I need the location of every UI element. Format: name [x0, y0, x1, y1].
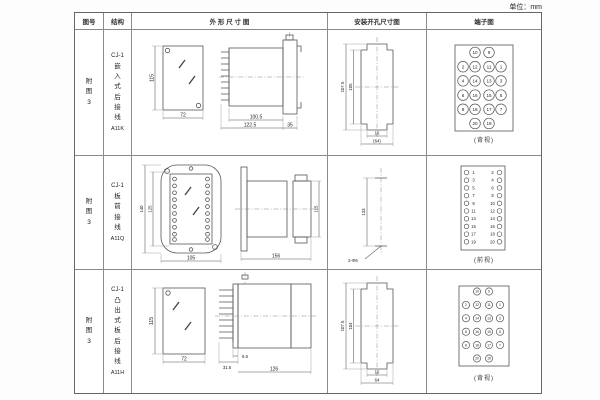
cell-outline-row1: 115 72 100.5 122.5 35 — [132, 30, 328, 156]
dim-label: 16 — [375, 369, 380, 374]
svg-text:10: 10 — [472, 50, 478, 55]
svg-text:18: 18 — [475, 343, 479, 347]
svg-text:4: 4 — [491, 177, 494, 182]
svg-text:12: 12 — [475, 303, 479, 307]
svg-text:10: 10 — [475, 289, 479, 293]
dim-label: 140 — [139, 204, 144, 212]
svg-text:7: 7 — [499, 343, 501, 347]
svg-text:9: 9 — [472, 200, 475, 205]
cell-terminal-row1: 1012141618209111315171924681357 (背视) — [427, 30, 541, 156]
svg-text:6: 6 — [465, 329, 467, 333]
cell-install-row1: 107.5 105 16 (64) — [328, 30, 427, 156]
dim-label: 115 — [149, 316, 155, 324]
svg-text:8: 8 — [462, 106, 465, 111]
terminal-diagram-a11k: 1012141618209111315171924681357 — [450, 42, 518, 134]
svg-text:12: 12 — [472, 64, 478, 69]
dim-label: 115 — [149, 73, 155, 81]
svg-text:5: 5 — [472, 185, 475, 190]
dim-label: 72 — [180, 112, 186, 118]
header-outline: 外 形 尺 寸 图 — [132, 13, 328, 30]
svg-text:17: 17 — [487, 343, 491, 347]
model-text: CJ-1 — [111, 183, 124, 189]
cell-structure-row2: CJ-1 板前接线 A11Q — [104, 156, 132, 270]
svg-text:13: 13 — [471, 216, 476, 221]
code-text: A11H — [111, 370, 124, 376]
svg-text:19: 19 — [487, 356, 491, 360]
dim-label: 115 — [313, 204, 318, 211]
cell-install-row2: 133 2-Φ6 — [328, 156, 427, 270]
dim-label: 100.5 — [249, 114, 262, 120]
cell-outline-row2: 140 125 105 156 115 — [132, 156, 328, 270]
mount-text: 嵌入式后接线 — [114, 62, 121, 122]
outline-drawing-a11q: 140 125 105 156 115 — [133, 157, 327, 269]
svg-text:9: 9 — [488, 50, 491, 55]
dim-label: 9.5 — [242, 354, 249, 359]
svg-text:19: 19 — [486, 121, 492, 126]
svg-text:3: 3 — [499, 316, 501, 320]
svg-text:5: 5 — [500, 92, 503, 97]
code-text: A11Q — [111, 236, 125, 242]
svg-text:8: 8 — [491, 193, 494, 198]
svg-text:6: 6 — [462, 92, 465, 97]
header-install: 安装开孔尺寸图 — [328, 13, 427, 30]
header-structure: 结构 — [104, 13, 132, 30]
code-text: A11K — [111, 126, 124, 132]
svg-text:8: 8 — [465, 343, 467, 347]
dim-label: 107.5 — [340, 320, 345, 331]
drawing-table: 图号 结构 外 形 尺 寸 图 安装开孔尺寸图 端子图 附图3 CJ-1 嵌入式… — [74, 12, 542, 394]
terminal-caption: (背视) — [474, 373, 494, 382]
dim-label: 107.5 — [340, 81, 345, 92]
svg-text:18: 18 — [472, 106, 478, 111]
model-text: CJ-1 — [111, 287, 124, 293]
dim-label: 156 — [271, 253, 280, 259]
svg-text:11: 11 — [487, 303, 491, 307]
dim-label: 133 — [361, 207, 366, 215]
dim-label: 16 — [375, 130, 380, 135]
svg-text:1: 1 — [499, 303, 501, 307]
mount-text: 板前接线 — [114, 192, 121, 232]
svg-text:13: 13 — [486, 78, 492, 83]
svg-text:19: 19 — [471, 239, 476, 244]
dim-label: 126 — [269, 366, 278, 372]
cell-fig-no-row1: 附图3 — [75, 30, 104, 156]
install-drawing-a11h: 107.5 104 16 64 — [331, 273, 423, 391]
svg-text:20: 20 — [490, 239, 495, 244]
fig-no-text: 附图3 — [85, 77, 92, 107]
dim-label: 2-Φ6 — [348, 258, 358, 263]
svg-text:16: 16 — [475, 329, 479, 333]
dim-label: (64) — [373, 138, 381, 143]
svg-text:17: 17 — [471, 231, 476, 236]
dim-label: 31.5 — [222, 365, 231, 370]
cell-install-row3: 107.5 104 16 64 — [328, 270, 427, 393]
cell-fig-no-row3: 附图3 — [75, 270, 104, 393]
dim-label: 72 — [181, 356, 187, 362]
terminal-diagram-a11h: 1012141618209111315171924681357 — [452, 282, 516, 372]
svg-text:16: 16 — [472, 92, 478, 97]
dim-label: 64 — [375, 377, 380, 382]
terminal-diagram-a11q: 1234567891011121314151617181920 — [450, 162, 518, 254]
svg-text:11: 11 — [471, 208, 476, 213]
unit-label: 单位：mm — [509, 2, 542, 12]
svg-text:1: 1 — [472, 170, 475, 175]
header-terminal: 端子图 — [427, 13, 541, 30]
svg-text:20: 20 — [472, 121, 478, 126]
outline-drawing-a11k: 115 72 100.5 122.5 35 — [133, 32, 327, 154]
svg-text:15: 15 — [471, 223, 476, 228]
svg-text:2: 2 — [465, 303, 467, 307]
install-drawing-a11q: 133 2-Φ6 — [331, 158, 423, 268]
cell-terminal-row2: 1234567891011121314151617181920 (前视) — [427, 156, 541, 270]
svg-text:6: 6 — [491, 185, 494, 190]
svg-text:4: 4 — [465, 316, 467, 320]
terminal-caption: (前视) — [474, 255, 494, 264]
cell-fig-no-row2: 附图3 — [75, 156, 104, 270]
svg-text:11: 11 — [487, 64, 492, 69]
svg-text:15: 15 — [487, 329, 491, 333]
svg-text:1: 1 — [500, 64, 503, 69]
svg-text:12: 12 — [490, 208, 495, 213]
cell-structure-row1: CJ-1 嵌入式后接线 A11K — [104, 30, 132, 156]
svg-text:10: 10 — [490, 200, 495, 205]
svg-text:2: 2 — [462, 64, 465, 69]
svg-text:17: 17 — [486, 106, 492, 111]
model-text: CJ-1 — [111, 53, 124, 59]
svg-text:2: 2 — [491, 170, 494, 175]
svg-text:5: 5 — [499, 329, 501, 333]
svg-text:4: 4 — [462, 78, 465, 83]
svg-text:14: 14 — [475, 316, 479, 320]
svg-text:15: 15 — [486, 92, 492, 97]
svg-text:13: 13 — [487, 316, 491, 320]
svg-text:9: 9 — [488, 289, 490, 293]
svg-text:3: 3 — [472, 177, 475, 182]
dim-label: 122.5 — [243, 122, 256, 128]
fig-no-text: 附图3 — [85, 197, 92, 227]
dim-label: 105 — [348, 82, 353, 90]
svg-text:3: 3 — [500, 78, 503, 83]
dim-label: 104 — [348, 321, 353, 329]
svg-text:7: 7 — [472, 193, 475, 198]
cell-terminal-row3: 1012141618209111315171924681357 (背视) — [427, 270, 541, 393]
svg-text:16: 16 — [490, 223, 495, 228]
dim-label: 125 — [147, 204, 152, 212]
terminal-caption: (背视) — [474, 135, 494, 144]
mount-text: 凸出式板后接线 — [114, 296, 121, 366]
dim-label: 35 — [287, 122, 293, 128]
cell-outline-row3: 115 72 9.5 31.5 126 — [132, 270, 328, 393]
install-drawing-a11k: 107.5 105 16 (64) — [331, 34, 423, 152]
dim-label: 105 — [186, 255, 195, 261]
header-fig-no: 图号 — [75, 13, 104, 30]
svg-text:14: 14 — [490, 216, 495, 221]
svg-text:14: 14 — [472, 78, 478, 83]
outline-drawing-a11h: 115 72 9.5 31.5 126 — [133, 272, 327, 392]
svg-text:20: 20 — [475, 356, 479, 360]
svg-text:18: 18 — [490, 231, 495, 236]
fig-no-text: 附图3 — [85, 316, 92, 346]
svg-text:7: 7 — [500, 106, 503, 111]
cell-structure-row3: CJ-1 凸出式板后接线 A11H — [104, 270, 132, 393]
